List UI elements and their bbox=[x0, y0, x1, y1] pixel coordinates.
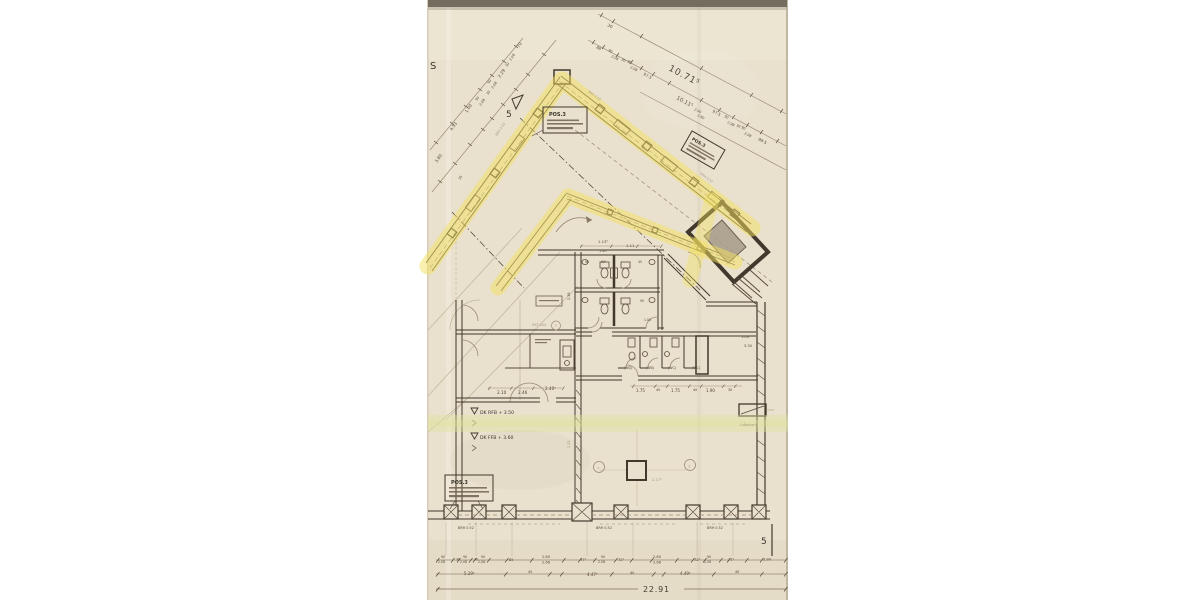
dim-label: BRH 0.52 bbox=[596, 526, 612, 530]
dim-label: 2.58 bbox=[704, 560, 711, 564]
dim-label: 2.08 bbox=[438, 560, 445, 564]
circled-number: 2 bbox=[688, 465, 690, 469]
dim-label: 1.04 bbox=[741, 335, 750, 339]
dim-label: 40 bbox=[693, 388, 697, 392]
dim-label: 1.75 bbox=[636, 388, 645, 393]
dim-label: 77⁵ bbox=[728, 558, 735, 562]
dim-label: 2.17⁵ bbox=[652, 477, 662, 482]
pos-box-title: POS.3 bbox=[549, 112, 566, 118]
dim-label: 4.47⁵ bbox=[587, 572, 598, 577]
green-highlight-band bbox=[428, 420, 788, 427]
dim-label: HST 204 bbox=[532, 323, 546, 327]
dim-label: 62⁵ bbox=[601, 260, 607, 264]
dim-label: 1.75 bbox=[671, 388, 680, 393]
circled-number: 7 bbox=[555, 324, 557, 328]
dim-label: 85 bbox=[509, 558, 514, 562]
dim-label: 40 bbox=[630, 571, 634, 575]
dim-label: 2.40⁵ bbox=[545, 386, 556, 391]
dim-label: (WB) bbox=[646, 366, 654, 370]
dim-label: 72⁵ bbox=[694, 558, 701, 562]
section-number-bottom: 5 bbox=[761, 537, 767, 547]
dim-label: (WC) bbox=[692, 366, 700, 370]
dim-label: 2.08 bbox=[478, 560, 485, 564]
dim-label: 2.10 bbox=[497, 390, 507, 395]
floorplan-drawing: POS.3 POS.3 POS.3 S 5 5 10.71⁵ 2 bbox=[0, 0, 1200, 600]
scanned-floorplan-page: POS.3 POS.3 POS.3 S 5 5 10.71⁵ 2 bbox=[0, 0, 1200, 600]
dim-label: 90 bbox=[601, 555, 605, 559]
dim-label: 2.08 bbox=[460, 560, 467, 564]
dim-label: 4.49⁵ bbox=[680, 571, 691, 576]
dim-label: 2.46 bbox=[518, 390, 528, 395]
overall-dim-bottom: 22.91 bbox=[643, 585, 670, 594]
shaft-label: Luftschacht bbox=[740, 423, 759, 427]
dim-label: 1.90 bbox=[706, 388, 715, 393]
dim-label: 1.40 bbox=[599, 249, 607, 253]
paper-left-edge bbox=[427, 0, 429, 600]
dim-label: BRH 0.52 bbox=[458, 526, 474, 530]
dim-label: 2.58 bbox=[598, 560, 605, 564]
circled-number: 7 bbox=[597, 467, 599, 471]
dim-label: 2.80 bbox=[653, 555, 662, 559]
dim-label: BRH 0.52 bbox=[707, 526, 723, 530]
dim-label: 45 bbox=[638, 260, 642, 264]
dim-label: 90 bbox=[463, 555, 467, 559]
dim-label: 1.00 bbox=[644, 318, 651, 322]
dim-label: 90 bbox=[481, 555, 485, 559]
dim-label: 2.38 bbox=[567, 292, 571, 300]
dim-label: 3.30 bbox=[744, 344, 753, 348]
paper-right-edge bbox=[786, 0, 788, 600]
level-label: DK RFB + 3.50 bbox=[480, 410, 514, 416]
dim-label: 1.11 bbox=[626, 243, 635, 248]
dim-label: 40 bbox=[735, 570, 739, 574]
dim-label: 72⁵ bbox=[618, 558, 625, 562]
dim-label: (WD) bbox=[624, 366, 632, 370]
dim-label: 90 bbox=[441, 555, 445, 559]
section-number-top: 5 bbox=[506, 110, 512, 120]
dim-label: 40 bbox=[528, 570, 532, 574]
dim-label: 2.66 bbox=[542, 561, 551, 565]
dim-label: (WC) bbox=[668, 366, 676, 370]
dim-label: 40 bbox=[656, 388, 660, 392]
dim-label: 1.13⁵ bbox=[598, 239, 608, 244]
dim-label: 90 bbox=[640, 299, 644, 303]
dim-label: 90 bbox=[707, 555, 711, 559]
dim-label: 77⁵ bbox=[580, 558, 587, 562]
dim-label: 5.29⁵ bbox=[464, 571, 475, 576]
dim-label: 2.80 bbox=[542, 555, 551, 559]
dim-label: 2.90 bbox=[763, 558, 772, 562]
dim-label: 90 bbox=[585, 260, 589, 264]
pos-box-title: POS.3 bbox=[451, 480, 468, 486]
sheet-letter: S bbox=[430, 61, 436, 72]
dim-label: 2.66 bbox=[653, 561, 662, 565]
dim-label: 30 bbox=[728, 388, 732, 392]
scan-top-bar bbox=[428, 0, 787, 7]
